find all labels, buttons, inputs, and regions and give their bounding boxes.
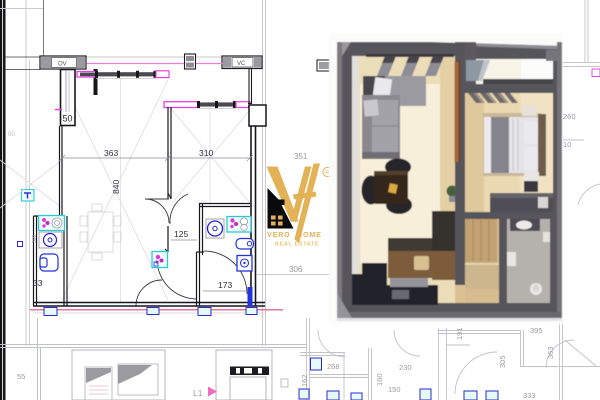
svg-text:55: 55 xyxy=(17,372,25,381)
svg-text:VERO: VERO xyxy=(267,230,291,239)
svg-text:395: 395 xyxy=(530,326,543,335)
svg-text:363: 363 xyxy=(546,346,555,359)
svg-text:306: 306 xyxy=(289,265,303,274)
svg-text:351: 351 xyxy=(294,152,308,161)
svg-text:162: 162 xyxy=(300,374,309,387)
svg-text:363: 363 xyxy=(104,148,118,158)
svg-text:305: 305 xyxy=(498,355,507,368)
svg-text:333: 333 xyxy=(523,391,536,400)
svg-text:10: 10 xyxy=(563,140,571,149)
svg-text:VC: VC xyxy=(237,61,246,67)
svg-text:R: R xyxy=(325,170,329,176)
svg-text:L1: L1 xyxy=(193,388,203,398)
svg-text:230: 230 xyxy=(399,363,412,372)
svg-text:OV: OV xyxy=(58,62,67,68)
svg-text:125: 125 xyxy=(174,229,188,239)
svg-text:150: 150 xyxy=(388,385,401,394)
svg-text:310: 310 xyxy=(199,148,213,158)
svg-text:33: 33 xyxy=(33,278,43,288)
svg-text:840: 840 xyxy=(111,180,121,194)
svg-text:300: 300 xyxy=(32,234,38,243)
svg-text:HOME: HOME xyxy=(297,230,322,239)
svg-text:50: 50 xyxy=(63,114,73,124)
svg-text:191: 191 xyxy=(455,327,464,340)
svg-text:REAL ESTATE: REAL ESTATE xyxy=(275,242,319,248)
svg-text:160: 160 xyxy=(375,373,384,386)
svg-text:173: 173 xyxy=(218,280,232,290)
svg-text:260: 260 xyxy=(563,112,576,121)
svg-text:268: 268 xyxy=(327,362,340,371)
svg-text:00: 00 xyxy=(8,132,15,138)
